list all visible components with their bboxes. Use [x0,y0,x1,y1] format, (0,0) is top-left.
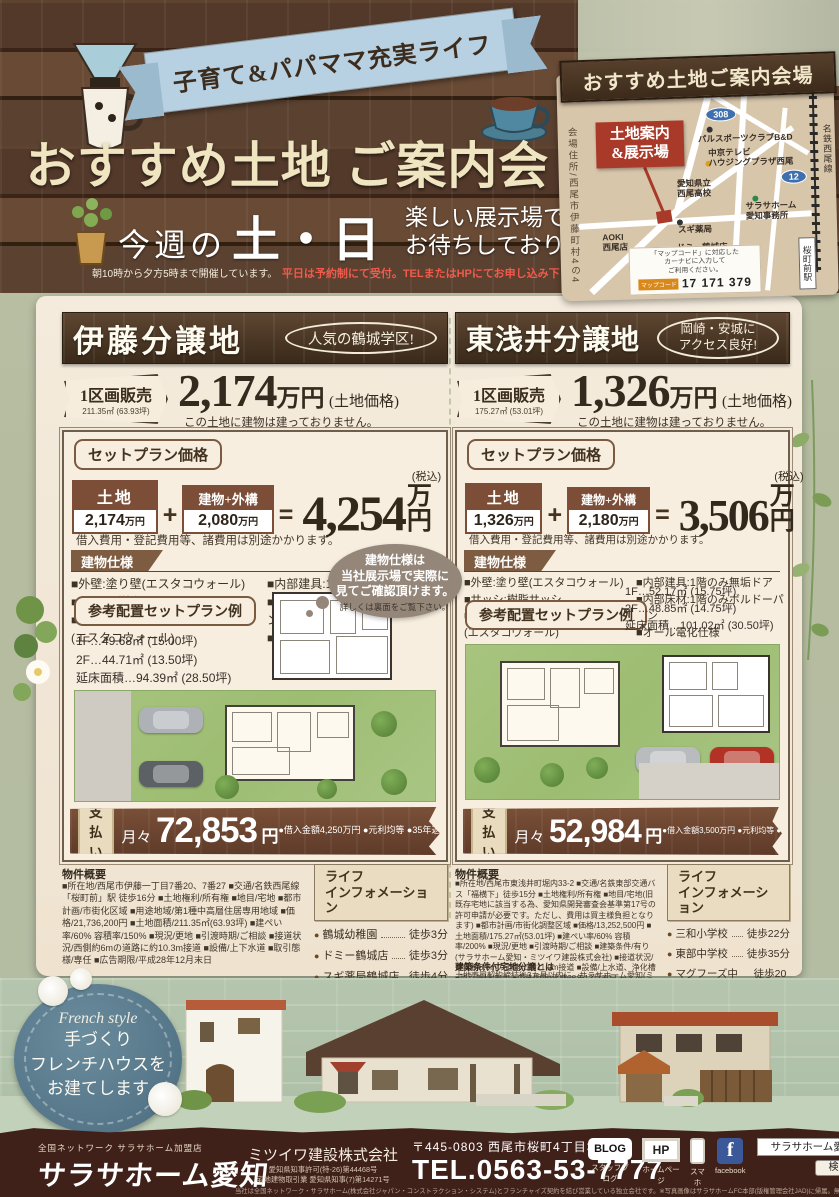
event-ribbon: 子育て&パパママ充実ライフ [144,8,521,115]
lot-area: 175.27㎡ (53.01坪) [459,406,559,417]
homepage-link[interactable]: HP ホームページ [642,1138,680,1186]
lot-sale-shape: 1区画販売 211.35㎡ (63.93坪) [64,374,168,424]
land-eq-unit: 万円 [125,517,145,528]
license-1: 愛知県知事許可(特-26)第44468号 [248,1165,398,1175]
map-place-aoki: AOKI 西尾店 [602,232,628,253]
property-name: 伊藤分譲地 [73,316,243,361]
monthly-amount: 72,853 [156,811,257,850]
driveway [639,763,779,799]
floorplan-2f-graphic [662,655,770,733]
mapcode-box: 「マップコード」に対応した カーナビに入力して ご利用ください。 マップコード … [629,244,762,295]
french-style-line: フレンチハウスを [14,1053,182,1078]
land-price: 2,174万円 (土地価格) [178,364,399,417]
facebook-caption: facebook [715,1166,745,1175]
vine-divider [449,318,451,918]
monthly-unit: 円 [261,827,278,846]
flower-decor [38,976,68,1006]
company-name: ミツイワ建設株式会社 [248,1144,398,1165]
life-info-label: ライフ インフォメーション [667,864,790,921]
total-price-number: 4,254 [302,492,405,535]
car-silver [139,707,203,733]
map-place-sugi-pharmacy: スギ薬局 [678,224,712,235]
plus-sign: + [547,501,562,530]
building-eq-box: 建物+外構 2,080万円 [182,485,273,534]
life-info-label: ライフ インフォメーション [314,864,448,921]
land-eq-unit: 万円 [514,517,534,528]
total-price: 4,254 (税込)万円 [302,468,446,534]
car-gray [139,761,203,787]
setplan-label: セットプラン価格 [74,439,222,470]
smartphone-icon[interactable] [690,1138,705,1164]
ribbon-text: 子育て&パパママ充実ライフ [171,24,494,98]
equals-sign: = [655,501,670,530]
life-item-walk: 徒歩35分 [747,946,790,961]
footer-links: BLOG スタッフブログ HP ホームページ スマホ f facebook サラ… [588,1138,839,1188]
building-eq-price: 2,080 [198,512,238,529]
fees-note: 借入費用・登記費用等、諸費用は別途かかります。 [76,532,339,548]
payment-example-bar: お支払い例 月々 72,853 円 ●借入金額4,250万円 ●元利均等 ●35… [70,807,440,855]
floorplan-1f-graphic [225,705,355,781]
reservation-note: 平日は予約制にて受付。TELまたはHPにてお申し込み下さい。 [282,268,593,280]
mapcode-badge: マップコード [639,278,679,290]
land-eq-price: 2,174 [85,512,125,529]
company-block: ミツイワ建設株式会社 愛知県知事許可(特-26)第44468号 宅地建物取引業 … [248,1144,398,1185]
network-label: 全国ネットワーク サラサホーム加盟店 [38,1142,269,1154]
flower-decor [70,968,92,990]
monthly-payment: 月々 72,853 円 [122,811,279,851]
plus-sign: + [163,501,178,530]
spec-notice-bubble: 建物仕様は 当社展示場で実際に 見てご確認頂けます。 詳しくは裏面をご覧下さい。 [328,544,462,618]
search-widget: サラサホーム愛知 検索➤ [757,1138,839,1176]
french-style-line: 手づくり [14,1028,182,1053]
smartphone-caption: スマホ [690,1166,705,1188]
land-price-unit: 万円 [670,386,718,412]
station-label: 桜町前駅 [798,237,816,289]
license-2: 宅地建物取引業 愛知県知事(7)第14271号 [248,1175,398,1185]
life-information: ライフ インフォメーション ●三和小学校徒歩22分 ●東部中学校徒歩35分 ●マ… [667,864,790,996]
land-price-number: 2,174 [178,365,277,416]
overview-body: ■所在地/西尾市伊藤一丁目7番20、7番27 ■交通/名鉄西尾線「桜町前」駅 徒… [62,880,308,967]
smartphone-link[interactable]: スマホ [690,1138,705,1188]
facebook-link[interactable]: f facebook [715,1138,745,1175]
lot-sale-label: 1区画販売 [459,382,559,406]
life-item: ●三和小学校徒歩22分 [667,926,790,941]
vacant-note: この土地に建物は建っておりません。 [577,414,771,430]
footer-disclaimer: 当社は全国ネットワーク・サラサホーム(株式会社ジャパン・コンストラクション・シス… [235,1186,839,1195]
building-spec-tag: 建物仕様 [71,550,163,571]
building-eq-box: 建物+外構 2,180万円 [567,487,650,534]
mapcode-value: 17 171 379 [682,275,752,291]
monthly-payment: 月々 52,984 円 [515,813,663,850]
search-input[interactable]: サラサホーム愛知 [757,1138,839,1156]
homepage-caption: ホームページ [642,1164,680,1186]
driveway [75,691,131,801]
total-price-number: 3,506 [679,497,768,534]
land-price: 1,326万円 (土地価格) [571,364,792,417]
event-date: 今週の 土・日 [118,200,382,270]
leaf-decor-left [8,580,60,710]
event-title: おすすめ土地 ご案内会 [0,126,575,198]
map-place-housing-plaza: 中京テレビ ハウジングプラザ西尾 [708,146,793,168]
search-button-label: 検索 [828,1162,839,1173]
building-spec-tag: 建物仕様 [464,550,556,571]
flyer-page: 子育て&パパママ充実ライフ おすすめ土地 ご案内会 今週の 土・日 楽しい展示場… [0,0,839,1197]
land-eq-label: 土地 [74,482,156,510]
land-price-row: 1区画販売 211.35㎡ (63.93坪) 2,174万円 (土地価格) この… [62,372,448,428]
access-map: 会場住所/西尾市伊藤町村4の4 土地案内 &展示場 308 12 パルスポーツク… [556,69,838,302]
life-item-walk: 徒歩3分 [409,926,448,942]
blog-icon[interactable]: BLOG [588,1138,632,1160]
potted-plant-icon [58,196,124,268]
property-badge: 岡崎・安城に アクセス良好! [657,317,779,359]
floor-areas: 1F…49.68㎡ (15.00坪) 2F…44.71㎡ (13.50坪) 延床… [76,632,231,688]
siteplan-graphic [465,644,780,800]
footer-bar: 全国ネットワーク サラサホーム加盟店 サラサホーム愛知 ミツイワ建設株式会社 愛… [0,1126,839,1197]
facebook-icon[interactable]: f [717,1138,743,1164]
map-place-sarasa-office: サラサホーム 愛知事務所 [745,200,796,222]
plan-example-label: 参考配置セットプラン例 [465,600,647,630]
bubble-sub-text: 詳しくは裏面をご覧下さい。 [328,601,462,613]
lot-sale-shape: 1区画販売 175.27㎡ (53.01坪) [457,374,561,424]
tax-included-label: (税込) [412,468,441,484]
spec-item: ■外壁:塗り壁(エスタコウォール) [464,575,636,592]
life-item-walk: 徒歩22分 [747,926,790,941]
floorplan-1f-graphic [500,661,620,747]
french-style-line: French style [14,1010,182,1028]
setplan-label: セットプラン価格 [467,439,615,470]
bubble-main-text: 建物仕様は 当社展示場で実際に 見てご確認頂けます。 [328,553,462,600]
building-eq-price: 2,180 [579,512,619,529]
monthly-prefix: 月々 [122,830,152,846]
price-equation: 土地 1,326万円 + 建物+外構 2,180万円 = 3,506 (税込)万… [465,468,808,534]
life-item-name: 鶴城幼稚園 [322,926,377,942]
fees-note: 借入費用・登記費用等、諸費用は別途かかります。 [469,532,709,547]
total-price: 3,506 (税込)万円 [679,468,809,534]
homepage-icon[interactable]: HP [642,1138,680,1162]
property-header: 東浅井分譲地 岡崎・安城に アクセス良好! [455,312,790,364]
property-name: 東浅井分譲地 [466,318,640,358]
blog-caption: スタッフブログ [588,1162,632,1184]
siteplan-graphic [74,690,436,802]
total-price-unit: 万円 [407,484,446,534]
payment-conditions: ●借入金額3,500万円 ●元利均等 ●35年返済 ●金利0.62%(変動金利)… [662,825,839,837]
monthly-prefix: 月々 [515,830,545,846]
search-button[interactable]: 検索➤ [815,1160,839,1176]
map-place-nishio-hs: 愛知県立 西尾高校 [677,178,712,199]
property-panel-ito: 伊藤分譲地 人気の鶴城学区! 1区画販売 211.35㎡ (63.93坪) 2,… [62,312,448,364]
setplan-box: セットプラン価格 土地 2,174万円 + 建物+外構 2,080万円 = 4,… [62,430,448,862]
land-price-row: 1区画販売 175.27㎡ (53.01坪) 1,326万円 (土地価格) この… [455,372,790,428]
floor-areas: 1F…52.17㎡ (15.75坪) 2F…48.85㎡ (14.75坪) 延床… [625,584,774,635]
lot-area: 211.35㎡ (63.93坪) [66,406,166,417]
land-price-suffix: (土地価格) [722,394,792,410]
land-price-number: 1,326 [571,365,670,416]
payment-example-bar: お支払い例 月々 52,984 円 ●借入金額3,500万円 ●元利均等 ●35… [463,807,782,855]
life-item-name: 三和小学校 [675,926,728,941]
building-eq-label: 建物+外構 [184,487,271,510]
property-badge: 人気の鶴城学区! [285,322,437,354]
building-eq-label: 建物+外構 [569,489,648,510]
venue-marker-label: 土地案内 &展示場 [595,120,684,168]
monthly-amount: 52,984 [549,813,641,849]
total-price-unit: 万円 [770,484,809,534]
life-item-name: ドミー鶴城店 [322,947,388,963]
vacant-note: この土地に建物は建っておりません。 [184,414,378,430]
lot-sale-label: 1区画販売 [66,382,166,406]
land-eq-label: 土地 [467,485,540,510]
life-item-walk: 徒歩3分 [409,947,448,963]
setplan-box: セットプラン価格 土地 1,326万円 + 建物+外構 2,180万円 = 3,… [455,430,790,862]
railway-line-label: 名鉄西尾線 [821,124,835,174]
mapcode-note: 「マップコード」に対応した カーナビに入力して ご利用ください。 [630,249,761,278]
spec-divider [464,571,780,572]
building-eq-unit: 万円 [238,517,258,528]
price-equation: 土地 2,174万円 + 建物+外構 2,080万円 = 4,254 (税込)万… [72,468,446,534]
property-header: 伊藤分譲地 人気の鶴城学区! [62,312,448,364]
tax-included-label: (税込) [774,468,803,484]
plan-example-label: 参考配置セットプラン例 [74,596,256,626]
life-item: ●東部中学校徒歩35分 [667,946,790,961]
flower-decor [148,1082,182,1116]
land-eq-box: 土地 2,174万円 [72,480,158,534]
equals-sign: = [279,501,294,530]
days-label: 土・日 [232,200,382,270]
property-panel-higashiasai: 東浅井分譲地 岡崎・安城に アクセス良好! 1区画販売 175.27㎡ (53.… [455,312,790,364]
open-hours-note: 朝10時から夕方5時まで開催しています。 [92,269,277,280]
building-eq-unit: 万円 [619,517,639,528]
land-price-suffix: (土地価格) [329,394,399,410]
week-label: 今週の [118,220,226,266]
life-item-name: 東部中学校 [675,946,728,961]
monthly-unit: 円 [645,827,662,846]
land-price-unit: 万円 [277,386,325,412]
life-item: ●ドミー鶴城店徒歩3分 [314,947,448,963]
life-item: ●鶴城幼稚園徒歩3分 [314,926,448,942]
blog-link[interactable]: BLOG スタッフブログ [588,1138,632,1184]
land-eq-box: 土地 1,326万円 [465,483,542,534]
land-eq-price: 1,326 [474,512,514,529]
spec-item: ■外壁:塗り壁(エスタコウォール) [71,575,267,593]
